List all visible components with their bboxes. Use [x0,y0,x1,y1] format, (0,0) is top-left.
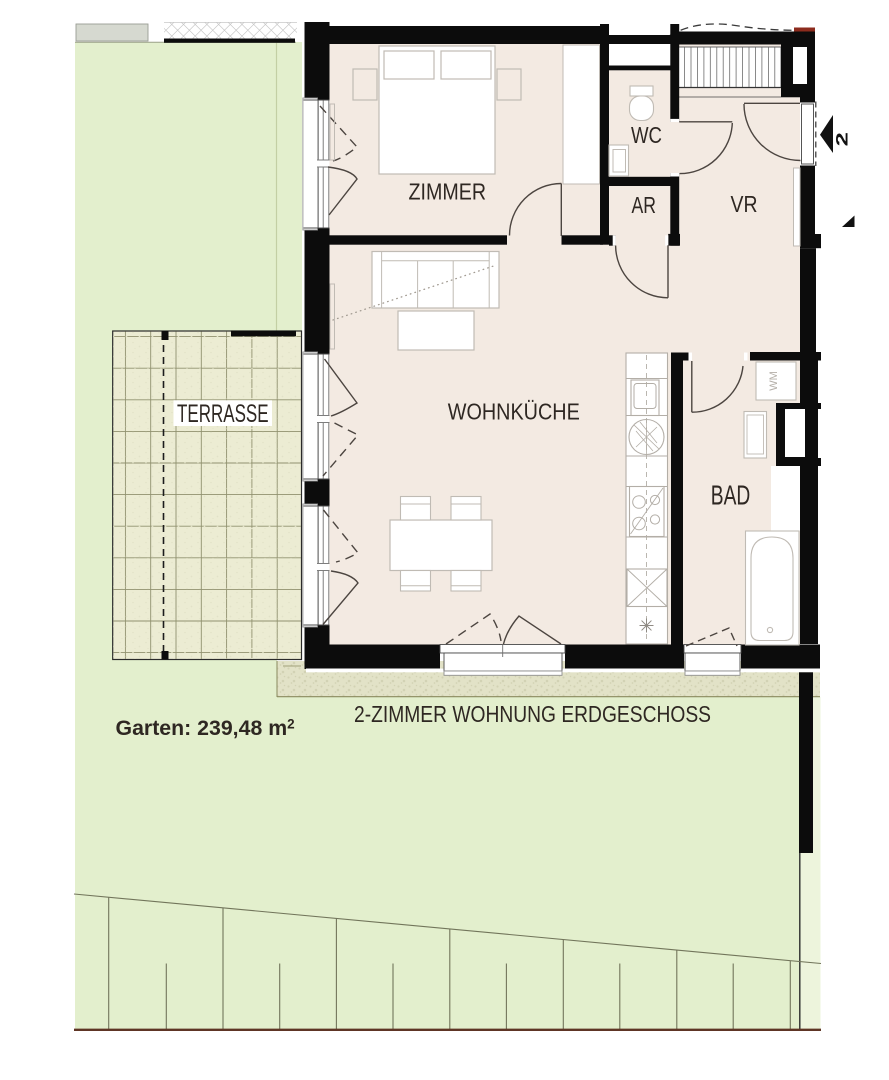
svg-text:WOHNKÜCHE: WOHNKÜCHE [448,399,580,425]
svg-text:VR: VR [731,191,758,217]
svg-text:2-ZIMMER WOHNUNG ERDGESCHOSS: 2-ZIMMER WOHNUNG ERDGESCHOSS [354,701,711,727]
svg-text:Garten: 239,48 m2: Garten: 239,48 m2 [116,716,295,740]
svg-text:WC: WC [631,122,662,148]
svg-text:WM: WM [768,371,780,391]
svg-text:ZIMMER: ZIMMER [409,178,487,204]
svg-text:2: 2 [833,132,851,146]
svg-text:BAD: BAD [711,479,751,510]
svg-text:AR: AR [632,192,657,218]
svg-text:TERRASSE: TERRASSE [177,400,269,428]
